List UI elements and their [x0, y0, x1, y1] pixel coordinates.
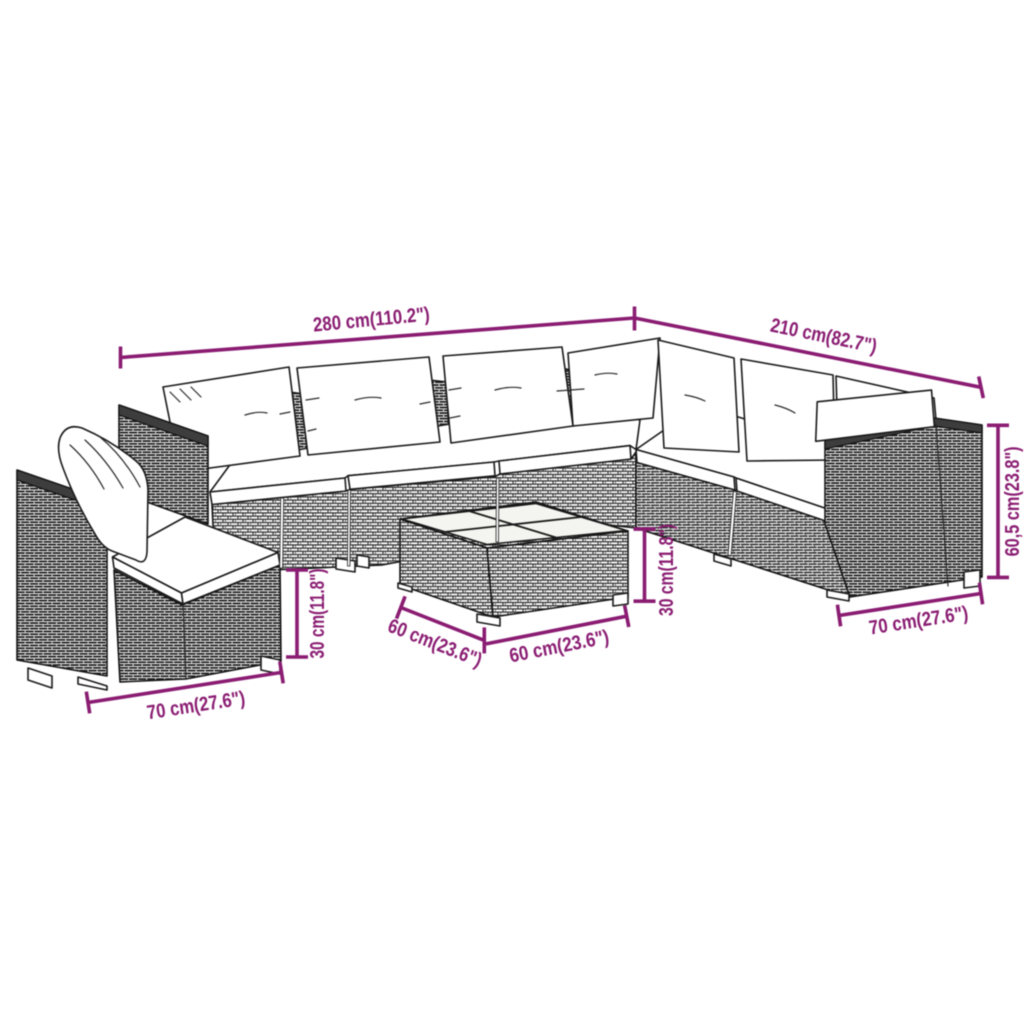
- svg-text:60,5 cm(23.8"): 60,5 cm(23.8"): [1002, 446, 1024, 556]
- svg-text:30 cm(11.8"): 30 cm(11.8"): [656, 524, 678, 616]
- svg-text:30 cm(11.8"): 30 cm(11.8"): [307, 569, 329, 659]
